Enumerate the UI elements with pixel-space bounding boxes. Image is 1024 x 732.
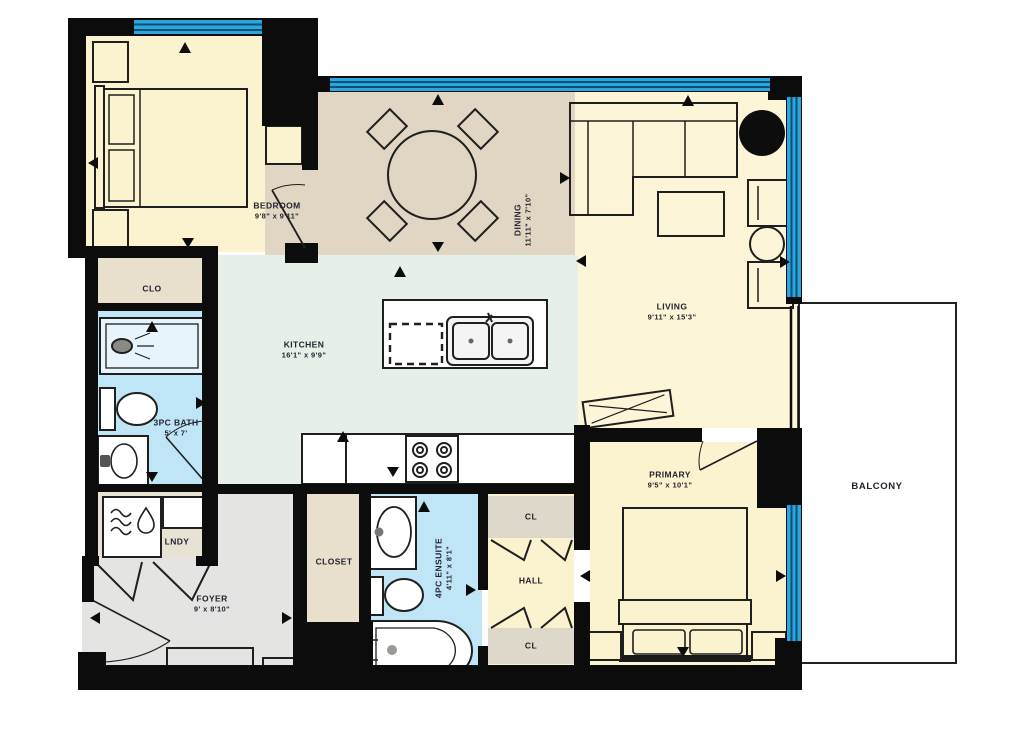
washer-dryer [103,497,161,557]
window [787,505,801,641]
direction-arrow [580,570,590,582]
clo-floor [85,252,213,310]
toilet [117,393,157,425]
nightstand [587,632,621,660]
closet-floor [300,490,366,628]
nightstand [93,42,128,82]
faucet-icon [100,455,110,467]
cl-upper-floor [488,496,574,538]
wall-niche [266,126,302,164]
window [330,78,770,91]
toilet-tank [100,388,115,430]
blanket-band [619,600,751,624]
window [134,20,262,34]
cl-lower-floor [488,628,574,664]
window [787,97,801,297]
floor-plan: BEDROOM 9'8" x 9'11" DINING 11'11" x 7'1… [0,0,1024,732]
bed-headboard [619,655,751,662]
toilet [385,579,423,611]
round-table-dark [739,110,785,156]
stove [406,436,458,482]
floor-plan-drawing [0,0,1024,732]
bed [104,89,247,207]
bed-headboard [95,86,104,208]
shower-head-icon [112,339,132,353]
balcony-outline [799,303,956,663]
foyer-floor-upper [213,490,297,560]
tub-drain [387,645,397,655]
faucet-icon [375,528,384,537]
